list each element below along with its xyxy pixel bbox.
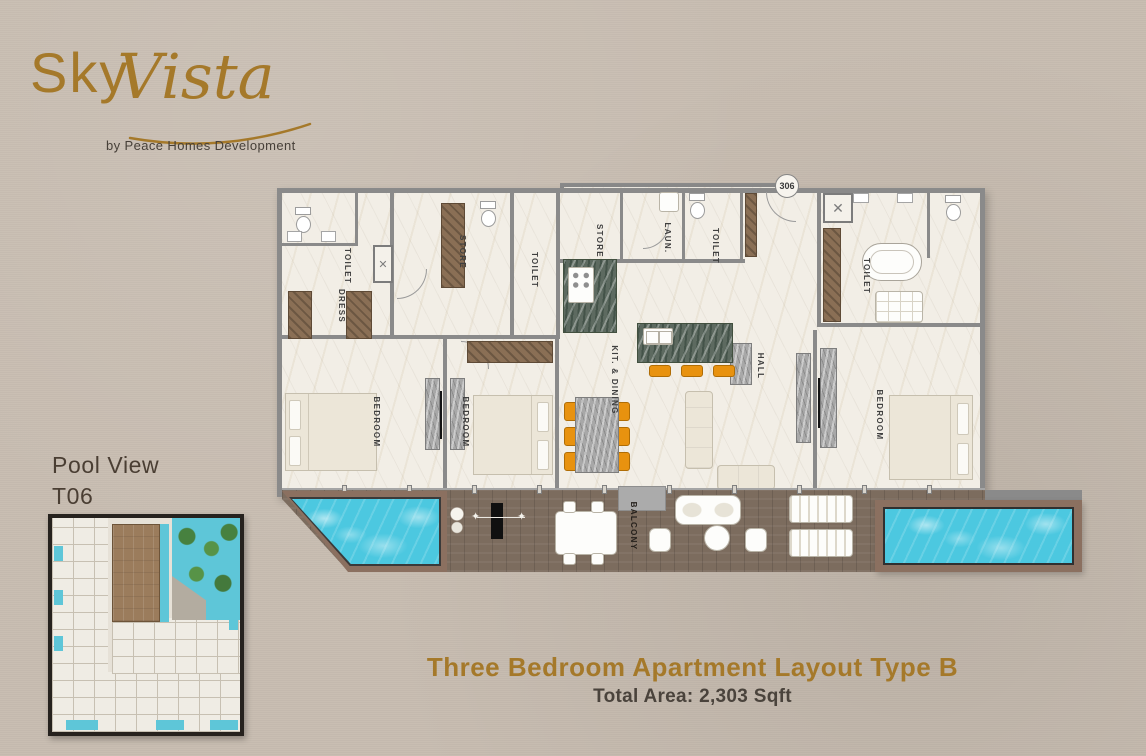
post [797, 485, 802, 494]
pillow [289, 400, 301, 430]
bar-stool [713, 365, 735, 377]
view-line1: Pool View [52, 450, 159, 481]
sink-icon [853, 193, 869, 203]
pillow [957, 403, 969, 435]
view-line2: T06 [52, 481, 159, 512]
siteplan-pool [54, 636, 63, 651]
bbq-grill-icon [447, 505, 467, 535]
wall [510, 188, 514, 339]
console [730, 343, 752, 385]
decor-diamond-icon: ✦ [517, 510, 526, 523]
bedroom-closet [467, 341, 553, 363]
siteplan-thumbnail [48, 514, 244, 736]
decor-diamond-icon: ✦ [471, 510, 480, 523]
sink-bowl [646, 331, 659, 344]
balcony-pool-left [282, 491, 447, 572]
sofa [685, 391, 713, 469]
siteplan-pool [210, 720, 238, 730]
total-area: Total Area: 2,303 Sqft [277, 686, 1108, 708]
shower-tray-icon [875, 291, 923, 323]
wall [817, 188, 821, 323]
logo-wordmark: Sky Vista [30, 34, 330, 107]
toilet-wc-icon [689, 193, 705, 219]
wall [740, 188, 743, 259]
room-label-toilet-master: TOILET [861, 231, 873, 321]
outdoor-chair [563, 501, 576, 513]
outdoor-chair [591, 553, 604, 565]
wardrobe [820, 348, 837, 448]
sun-lounger [789, 529, 853, 557]
pool-water [883, 507, 1074, 565]
logo-tagline: by Peace Homes Development [106, 138, 296, 153]
stove-icon [568, 267, 594, 303]
post [862, 485, 867, 494]
post [667, 485, 672, 494]
bed [473, 395, 553, 475]
toilet-wc-icon [480, 201, 496, 227]
wall [682, 188, 685, 259]
room-label-balcony: BALCONY [628, 481, 640, 571]
brand-logo: Sky Vista by Peace Homes Development [30, 34, 330, 107]
wall [813, 330, 817, 492]
sink-bowl [659, 331, 672, 344]
post [927, 485, 932, 494]
room-label-kitchen-dining: KIT. & DINING [609, 335, 621, 425]
floor-plan: 306 ✕ ✕ [277, 183, 1108, 590]
sun-lounger [789, 495, 853, 523]
bed [285, 393, 377, 471]
unit-number: 306 [779, 181, 794, 191]
wall [277, 335, 560, 339]
outdoor-chair [591, 501, 604, 513]
tv-wall [425, 378, 440, 450]
outdoor-round-table [704, 525, 730, 551]
bathtub-inner [870, 250, 914, 274]
tv-wall [796, 353, 811, 443]
wall [443, 339, 447, 492]
room-label-laundry: LAUN. [662, 193, 674, 283]
siteplan-pool-strip [160, 524, 169, 622]
tv-icon [818, 378, 820, 428]
logo-vista-text: Vista [117, 40, 274, 113]
pillow [289, 436, 301, 466]
duct-shaft-icon: ✕ [373, 245, 393, 283]
room-label-hall: HALL [755, 321, 767, 411]
tv-icon [440, 391, 442, 439]
siteplan-right-wing [112, 618, 240, 674]
balcony-pool-right [875, 500, 1082, 572]
wall [355, 188, 358, 246]
toilet-wc-icon [295, 207, 311, 233]
pool-water [292, 499, 439, 564]
outdoor-armchair [649, 528, 671, 552]
bed [889, 395, 973, 480]
wall [556, 188, 560, 339]
sink-icon [897, 193, 913, 203]
grill-cabinet [491, 503, 503, 539]
siteplan-pool [54, 546, 63, 561]
post [602, 485, 607, 494]
wall [817, 323, 985, 327]
outdoor-dining-table [555, 511, 617, 555]
room-label-toilet-2: TOILET [529, 225, 541, 315]
siteplan-pool [66, 720, 98, 730]
brochure-page: Sky Vista by Peace Homes Development Poo… [0, 0, 1146, 756]
layout-title: Three Bedroom Apartment Layout Type B [277, 652, 1108, 683]
pillow [537, 440, 549, 470]
island-sink-icon [643, 328, 673, 345]
wall [555, 339, 559, 492]
logo-sky-text: Sky [30, 40, 129, 105]
sofa [717, 465, 775, 490]
view-label: Pool View T06 [52, 450, 159, 512]
toilet-wc-icon [945, 195, 961, 221]
room-label-toilet-3: TOILET [710, 201, 722, 291]
wall [620, 188, 623, 259]
sink-icon [287, 231, 302, 242]
bar-stool [649, 365, 671, 377]
pillow [957, 443, 969, 475]
outdoor-chair [563, 553, 576, 565]
dress-closet [288, 291, 312, 339]
siteplan-pool [156, 720, 184, 730]
outdoor-armchair [745, 528, 767, 552]
post [537, 485, 542, 494]
pillow [537, 402, 549, 432]
elevator-shaft-icon: ✕ [823, 193, 853, 223]
wardrobe [745, 193, 757, 257]
room-label-bedroom-2: BEDROOM [460, 377, 472, 467]
room-label-bedroom-1: BEDROOM [371, 377, 383, 467]
siteplan-highlighted-unit [112, 524, 160, 622]
bar-stool [681, 365, 703, 377]
post [472, 485, 477, 494]
unit-number-badge: 306 [775, 174, 799, 198]
room-label-dress: DRESS [336, 261, 348, 351]
room-label-bedroom-3: BEDROOM [874, 370, 886, 460]
wall [971, 490, 1082, 500]
balcony-step [618, 486, 666, 511]
post [732, 485, 737, 494]
wardrobe [823, 228, 841, 322]
siteplan-pool [229, 614, 238, 630]
room-label-store-1: STORE [457, 207, 469, 297]
bed-fold [308, 394, 309, 470]
bed-fold [950, 396, 951, 479]
wall [927, 188, 930, 258]
room-label-store-2: STORE [594, 196, 606, 286]
bed-fold [531, 396, 532, 474]
sink-icon [321, 231, 336, 242]
outdoor-sofa [675, 495, 741, 525]
siteplan-pool [54, 590, 63, 605]
